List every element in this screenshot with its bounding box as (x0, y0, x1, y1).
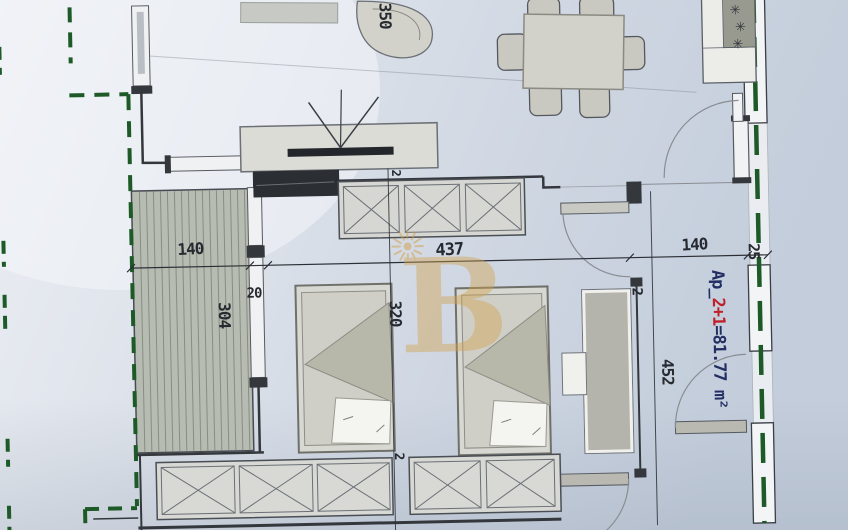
wall-tag: 2 (391, 452, 406, 460)
wardrobe-row (409, 454, 561, 514)
watermark-letter: B (397, 228, 510, 383)
left-window (130, 6, 153, 94)
bed (295, 284, 394, 453)
floorplan-svg: ✳ ✳ ✳ (0, 0, 848, 530)
dim-balcony-wall: 20 (246, 285, 262, 301)
wall-block (630, 277, 642, 286)
wall-block (247, 245, 265, 257)
plant-cabinet: ✳ ✳ ✳ (701, 0, 756, 83)
wall-tag: 2 (629, 287, 645, 296)
desk (582, 289, 634, 454)
balcony-side-window-lower (249, 257, 266, 377)
entry-door-frame (731, 115, 751, 183)
apartment-label: Ap_2+1=81.77 m² (707, 270, 730, 409)
plant-icon: ✳ (732, 37, 743, 52)
apartment-prefix: Ap_ (707, 270, 728, 300)
dim-entry-width: 140 (681, 234, 708, 254)
bed-pillow (489, 399, 548, 447)
desk-chair (562, 353, 587, 395)
dining-table (523, 14, 624, 89)
bed-pillow (331, 397, 392, 445)
apartment-unit-type: 2+1 (708, 297, 729, 326)
wall-block (249, 377, 267, 387)
plant-icon: ✳ (735, 20, 746, 35)
wall-tag: 2 (389, 169, 403, 177)
dim-balcony-length: 304 (215, 302, 235, 329)
wall-block (626, 181, 641, 203)
wall-block (634, 468, 646, 477)
floorplan-photo: ✳ ✳ ✳ (0, 0, 848, 530)
kitchen-counter-black (253, 170, 340, 198)
dim-sofa: 350 (376, 3, 396, 30)
dim-right-wall: 25 (745, 243, 763, 260)
plant-icon: ✳ (730, 3, 741, 18)
wardrobe-row (156, 458, 393, 520)
dim-right-length: 452 (658, 359, 678, 386)
apartment-area: =81.77 m² (708, 325, 730, 409)
rug (241, 3, 338, 24)
dim-balcony-width: 140 (177, 239, 204, 259)
watermark: B (391, 228, 510, 383)
balcony-deck (131, 189, 253, 453)
